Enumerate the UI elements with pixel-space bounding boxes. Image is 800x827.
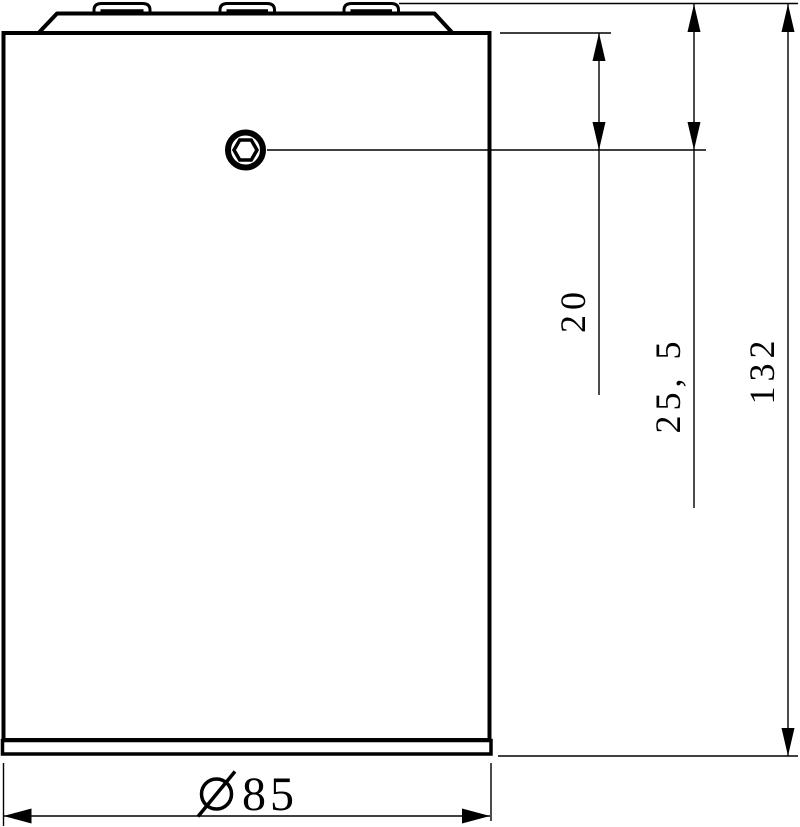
dimension-20: 20: [553, 33, 606, 395]
dim-label-85: 85: [242, 768, 298, 821]
bottom-plate: [3, 741, 492, 755]
arrow-left: [4, 809, 32, 824]
arrow-up: [593, 33, 606, 61]
dim-label-25-5: 25, 5: [648, 337, 688, 434]
arrow-right: [462, 809, 490, 824]
drawing-sheet: 20 25, 5 132: [0, 0, 800, 827]
arrow-up: [688, 4, 701, 32]
dimension-diameter-85: 85: [4, 768, 491, 824]
dimension-25-5: 25, 5: [648, 4, 701, 509]
technical-drawing: 20 25, 5 132: [0, 0, 800, 827]
dim-label-20: 20: [553, 287, 593, 333]
arrow-up: [782, 4, 795, 32]
hex-socket-icon: [234, 140, 257, 160]
arrow-down: [782, 728, 795, 756]
arrow-down: [593, 122, 606, 150]
hex-socket-screw: [228, 133, 263, 168]
part-outline: [3, 4, 492, 755]
dimension-132: 132: [742, 4, 795, 757]
arrow-down: [688, 122, 701, 150]
top-cap: [39, 14, 453, 34]
diameter-symbol-icon: [198, 772, 235, 817]
dim-label-132: 132: [742, 336, 782, 405]
